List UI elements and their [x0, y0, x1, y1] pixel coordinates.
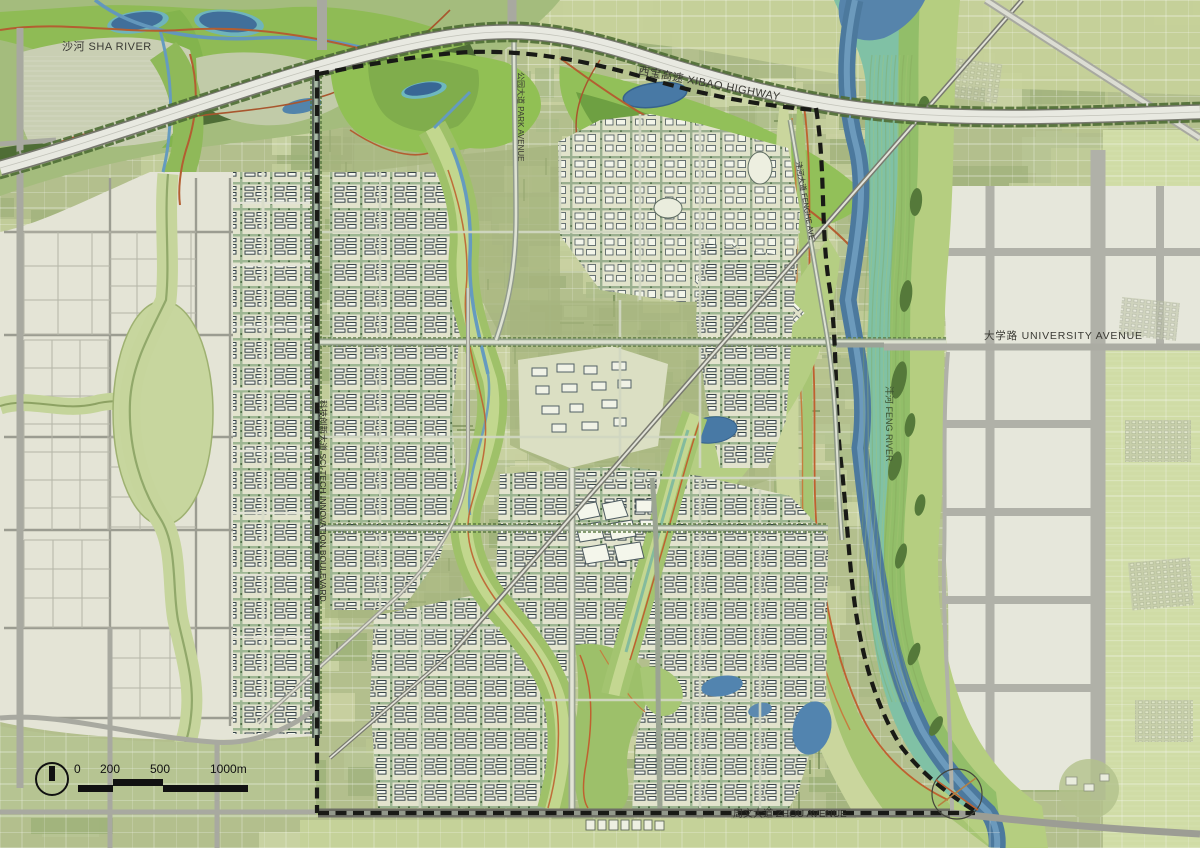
- svg-text:200: 200: [100, 762, 120, 776]
- svg-text:周文大道 ZHOU AVENUE: 周文大道 ZHOU AVENUE: [733, 807, 847, 820]
- svg-text:500: 500: [150, 762, 170, 776]
- svg-text:大学路 UNIVERSITY AVENUE: 大学路 UNIVERSITY AVENUE: [984, 329, 1143, 342]
- svg-text:公园大道 PARK AVENUE: 公园大道 PARK AVENUE: [516, 72, 526, 162]
- svg-text:沣河 FENG RIVER: 沣河 FENG RIVER: [884, 386, 895, 462]
- svg-text:1000m: 1000m: [210, 762, 247, 776]
- svg-text:0: 0: [74, 762, 81, 776]
- svg-text:沙河 SHA RIVER: 沙河 SHA RIVER: [62, 40, 152, 53]
- svg-text:科技创新大道 SCI-TECH INNOVATION BOU: 科技创新大道 SCI-TECH INNOVATION BOULEVARD: [318, 400, 328, 602]
